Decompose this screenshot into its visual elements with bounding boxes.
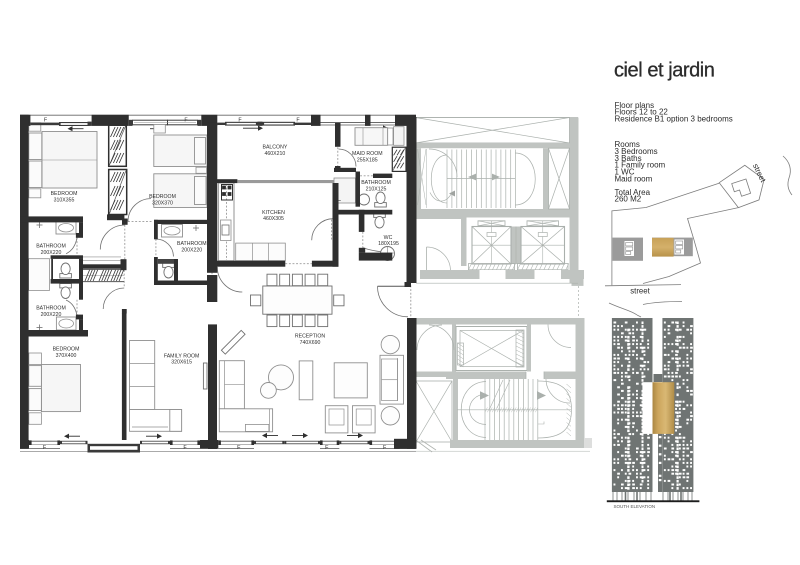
svg-text:310X355: 310X355 xyxy=(54,197,75,203)
svg-text:BALCONY: BALCONY xyxy=(263,145,288,151)
svg-text:RECEPTION: RECEPTION xyxy=(295,333,326,339)
svg-text:180X195: 180X195 xyxy=(378,241,399,247)
svg-text:BEDROOM: BEDROOM xyxy=(149,194,176,200)
svg-text:street: street xyxy=(630,287,650,296)
svg-text:Residence B1 option 3 bedrooms: Residence B1 option 3 bedrooms xyxy=(615,115,733,124)
svg-text:460X210: 460X210 xyxy=(265,151,286,157)
svg-text:ciel et jardin: ciel et jardin xyxy=(614,60,714,82)
svg-text:BATHROOM: BATHROOM xyxy=(361,180,391,186)
svg-text:460X305: 460X305 xyxy=(263,216,284,222)
svg-text:MAID ROOM: MAID ROOM xyxy=(352,151,383,157)
svg-text:200X220: 200X220 xyxy=(181,247,202,253)
svg-text:BATHROOM: BATHROOM xyxy=(36,305,66,311)
svg-text:260 M2: 260 M2 xyxy=(615,195,642,204)
svg-text:200X220: 200X220 xyxy=(41,312,62,318)
svg-text:320X370: 320X370 xyxy=(152,200,173,206)
svg-text:FAMILY ROOM: FAMILY ROOM xyxy=(164,353,200,359)
svg-text:370X400: 370X400 xyxy=(56,353,77,359)
svg-text:KITCHEN: KITCHEN xyxy=(262,210,285,216)
svg-text:200X220: 200X220 xyxy=(41,250,62,256)
svg-text:SOUTH ELEVATION: SOUTH ELEVATION xyxy=(614,504,656,509)
svg-text:255X185: 255X185 xyxy=(357,158,378,164)
svg-text:BEDROOM: BEDROOM xyxy=(53,347,80,353)
svg-text:740X690: 740X690 xyxy=(300,340,321,346)
svg-text:BEDROOM: BEDROOM xyxy=(51,191,78,197)
svg-text:Maid room: Maid room xyxy=(615,175,653,184)
svg-text:BATHROOM: BATHROOM xyxy=(177,241,207,247)
svg-text:BATHROOM: BATHROOM xyxy=(36,244,66,250)
svg-text:320X615: 320X615 xyxy=(171,360,192,366)
svg-text:210X125: 210X125 xyxy=(366,187,387,193)
